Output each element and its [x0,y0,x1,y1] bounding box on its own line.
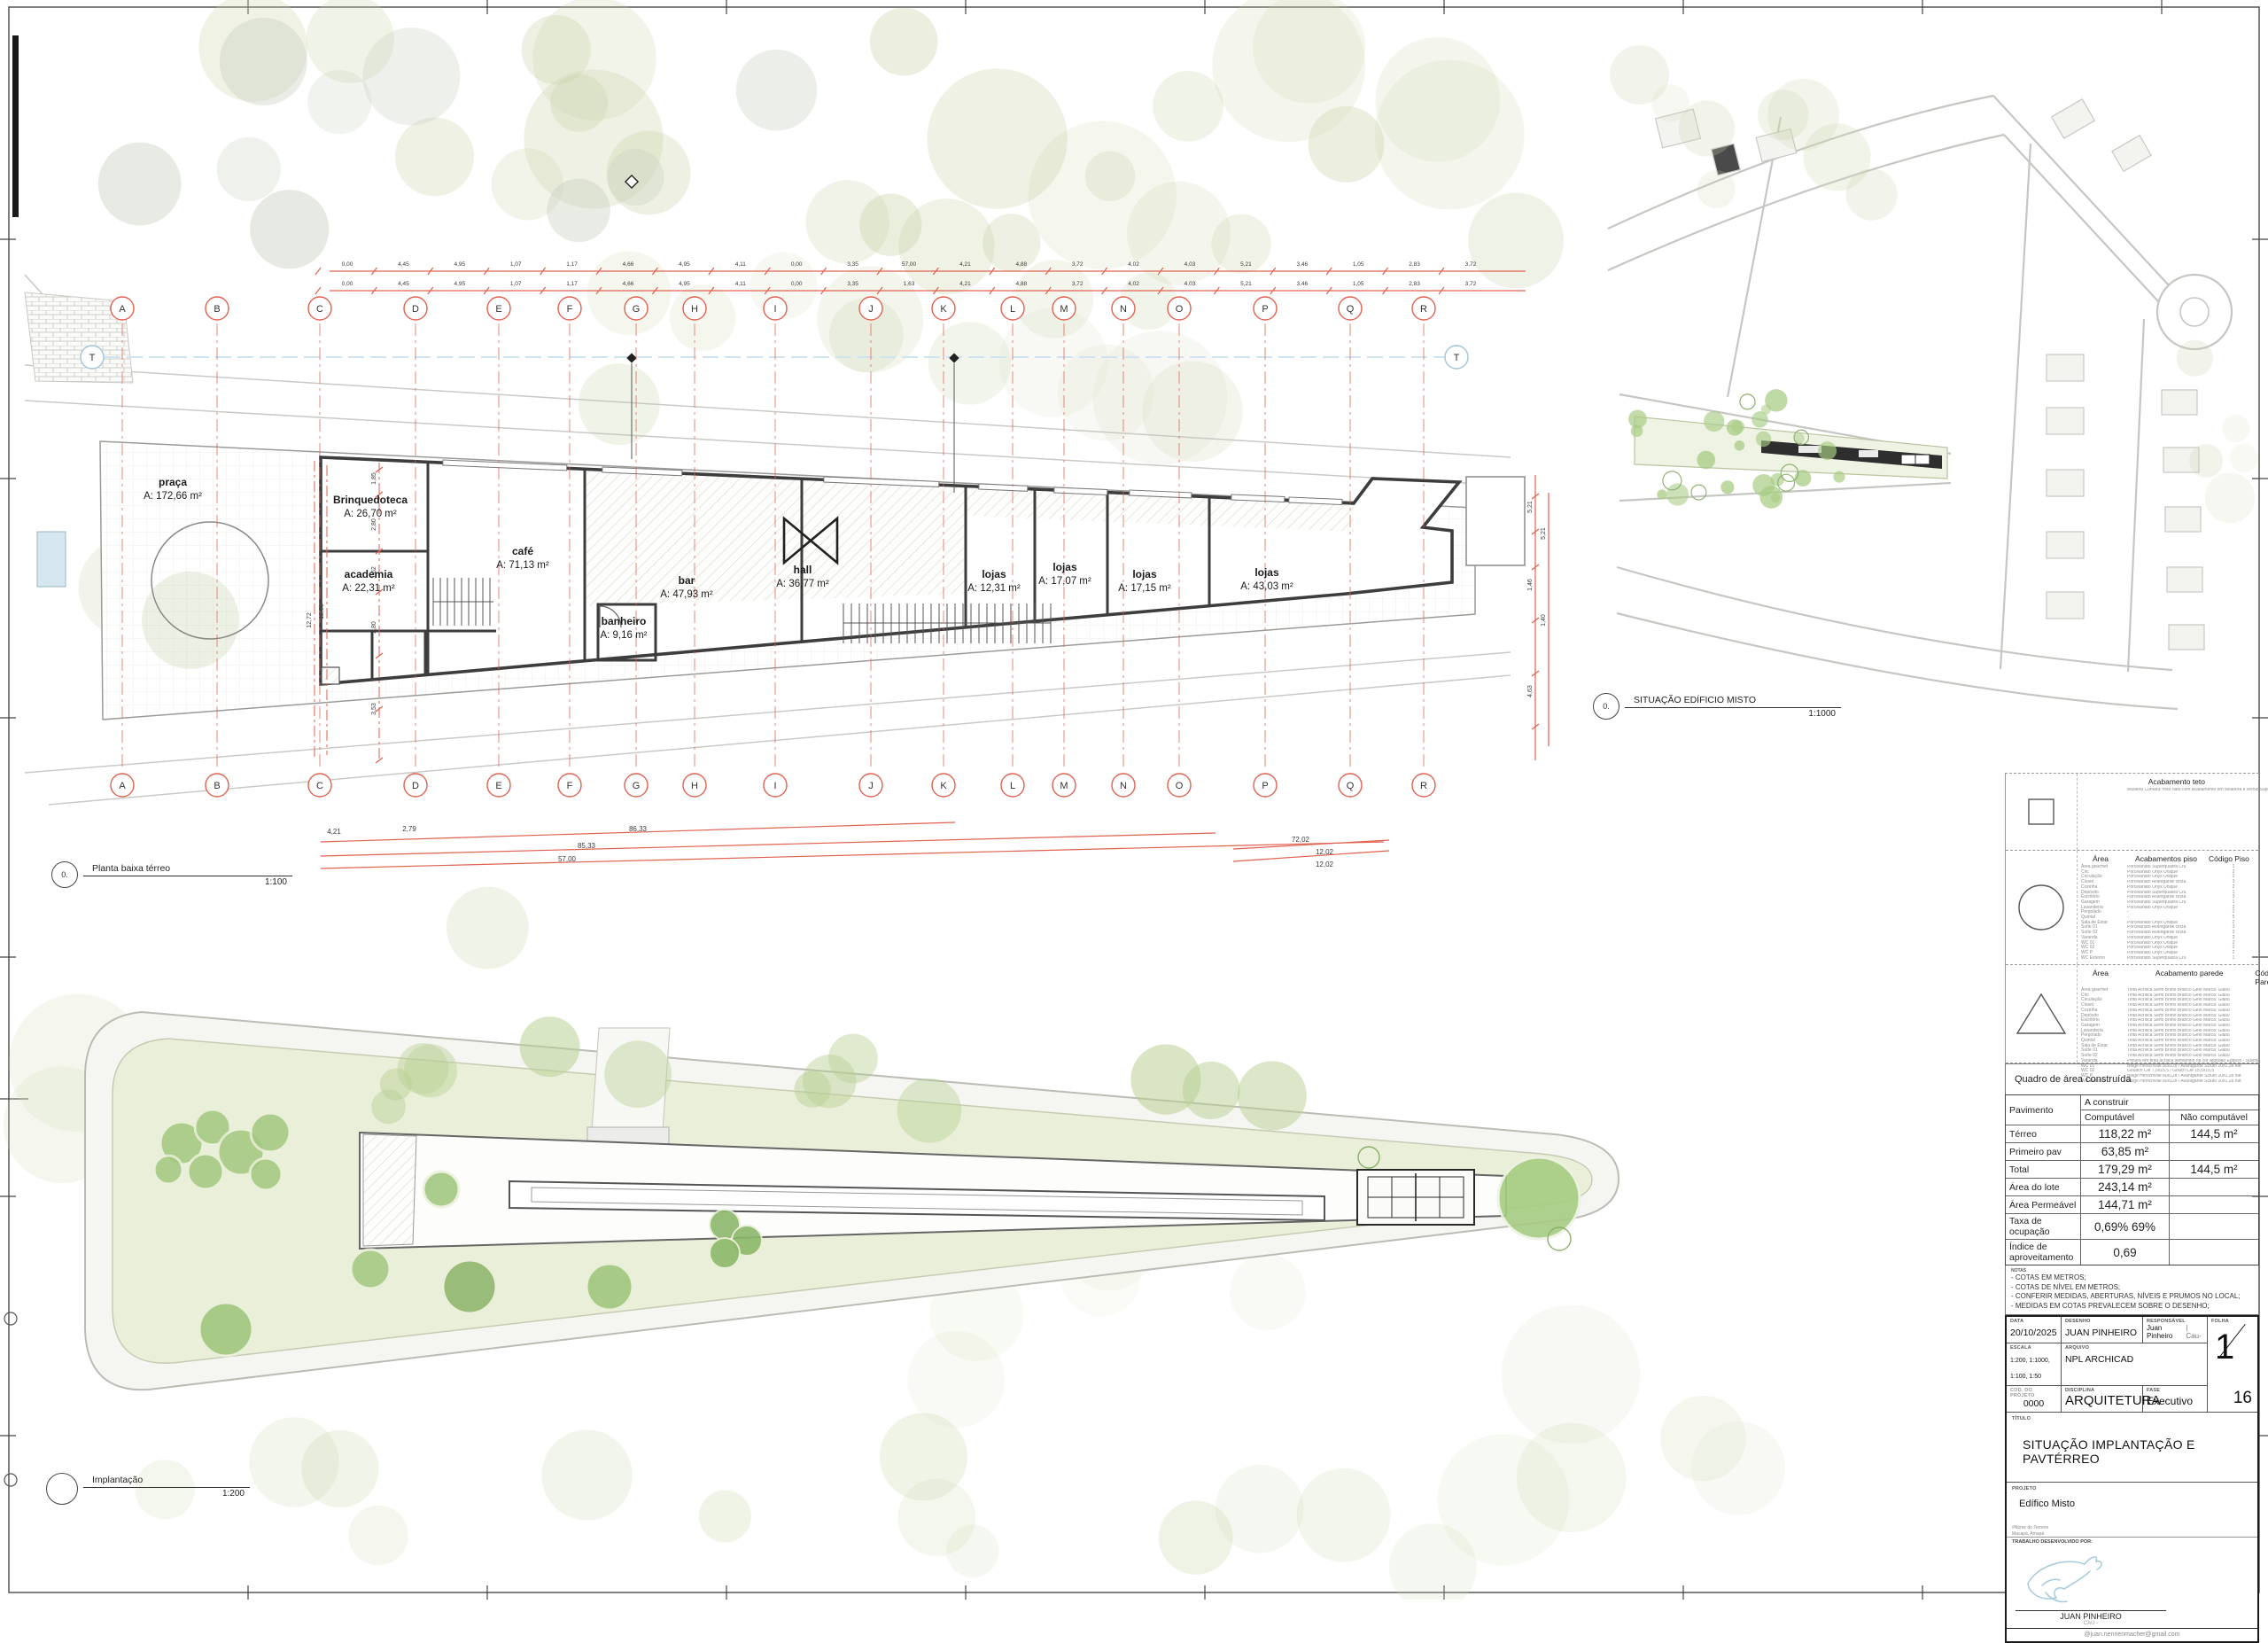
row-label: Térreo [2006,1125,2080,1142]
dimension-value: 2,79 [402,825,416,833]
author-cau: CAU - [2016,1621,2166,1626]
view-bubble: 0. [51,861,78,888]
dimension-value: 4,95 [679,281,690,287]
notes-box: NOTAS - COTAS EM METROS;- COTAS DE NÍVEL… [2005,1265,2259,1315]
legend-header: Área [2078,854,2124,863]
row-computavel: 0,69 [2080,1239,2169,1265]
grid-letter: L [1010,781,1015,791]
floor-symbol-circle [2006,851,2077,964]
dimension-value: 2,80 [371,518,377,531]
room-area: A: 36,77 m² [776,579,829,589]
registration-mark [4,1312,17,1325]
note-item: - CONFERIR MEDIDAS, ABERTURAS, NÍVEIS E … [2011,1292,2253,1302]
dimension-value: 3,46 [1296,281,1308,287]
floor-hatch-bar-hall [585,469,966,606]
room-area: A: 172,66 m² [144,491,202,502]
room-name: lojas [1132,568,1157,580]
legend-header: Código Parede [2255,969,2268,986]
row-computavel: 118,22 m² [2080,1125,2169,1142]
legend-ceiling: Acabamento teto Código Teto Madeira Cuma… [2006,774,2258,851]
legend-row: Madeira Cumaru: friso nato com acabament… [2078,788,2268,793]
right-column: Acabamento teto Código Teto Madeira Cuma… [2005,773,2259,1643]
dimension-value: 5,21 [1527,501,1534,513]
dimension-value: 4,45 [398,281,409,287]
grid-letter: K [940,304,947,315]
dimension-value: 4,95 [679,261,690,268]
sheet-number: 1 [2215,1328,2234,1367]
view-bubble [46,1473,78,1505]
dimension-value: 1,07 [510,281,522,287]
legend-row: WC ExternoPorcelanato Superquadra Cru1 [2078,956,2255,962]
legend-header: Código Piso [2209,854,2255,863]
field-fase: FASE Executivo [2143,1386,2208,1413]
grid-letter: R [1420,781,1427,791]
dimension-value: 3,35 [847,261,858,268]
note-item: - COTAS EM METROS; [2011,1273,2253,1283]
grid-letter: A [119,781,126,791]
room-name: academia [345,568,393,580]
dimension-value: 2,83 [1409,281,1420,287]
room-area: A: 26,70 m² [344,509,397,519]
legend-header: Acabamento parede [2124,969,2255,986]
dimension-value: 4,11 [735,281,747,287]
legend-header: Área [2078,969,2124,986]
dimension-value: 4,88 [1015,281,1027,287]
row-nao-computavel [2169,1178,2258,1195]
grid-letter: A [119,304,126,315]
dimension-value: 4,95 [454,281,465,287]
dimension-value: 4,03 [1184,281,1196,287]
dimension-value: 4,21 [327,828,341,836]
roundabout [2157,275,2232,349]
table-header: A construir [2080,1095,2169,1110]
table-header: Pavimento [2006,1095,2080,1125]
dimension-value: 4,03 [1184,261,1196,268]
view-label-implantacao: Implantação 1:200 [46,1473,250,1505]
sheet-total: 16 [2233,1389,2252,1408]
table-header: Computável [2080,1110,2169,1125]
table-header: Não computável [2169,1110,2258,1125]
dimension-value: 1,40 [1541,614,1547,627]
situation-plan-view [1608,45,2258,709]
dimension-value: 4,95 [454,261,465,268]
dimension-value: 1,05 [1353,281,1364,287]
room-area: A: 12,31 m² [967,583,1021,594]
grid-letter: J [868,781,874,791]
dimension-value: 86,33 [629,825,648,833]
room-area: A: 17,15 m² [1118,583,1171,594]
dimension-value: 1,85 [371,472,377,485]
row-label: Índice de aproveitamento [2006,1239,2080,1265]
view-title: Implantação [83,1475,250,1488]
field-desenho: DESENHO JUAN PINHEIRO [2062,1317,2143,1343]
room-name: lojas [1254,566,1279,579]
field-cod-projeto: COD. DO PROJETO 0000 [2007,1386,2062,1413]
water-feature [37,532,66,587]
ceiling-symbol-square [2006,774,2077,850]
dimension-value: 85,33 [578,842,596,850]
cad-drawing-canvas: T T AABBCCDDEEFFGGHHIIJJKKLLMMNNOOPPQQRR… [0,0,2268,1600]
map-buildings [1656,99,2204,650]
field-data: DATA 20/10/2025 [2007,1317,2062,1343]
dimension-value: 3,72 [1072,261,1084,268]
note-item: - COTAS DE NÍVEL EM METROS; [2011,1283,2253,1293]
view-scale: 1:200 [83,1488,250,1499]
roof-hatch [363,1134,416,1246]
room-area: A: 43,03 m² [1240,581,1293,592]
grid-letter: L [1010,304,1015,315]
dimension-value: 1,17 [566,261,578,268]
dimension-value: 2,80 [371,621,377,634]
dimension-value: 0,00 [342,281,353,287]
view-bubble: 0. [1593,693,1619,720]
dimension-value: 4,21 [959,281,971,287]
room-area: A: 9,16 m² [600,630,647,641]
section-letter: T [1454,353,1460,363]
room-name: lojas [982,568,1006,580]
legend-header: Acabamentos piso [2124,854,2209,863]
floor-plan-view: T T AABBCCDDEEFFGGHHIIJJKKLLMMNNOOPPQQRR… [25,0,1564,969]
praca-lawn [142,572,239,669]
dimension-value: 0,00 [791,261,803,268]
registration-mark [4,1474,17,1486]
field-projeto: PROJETO Edífico Misto [2007,1483,2257,1525]
signature-area: JUAN PINHEIRO CAU - [2007,1546,2257,1628]
grid-letter: F [567,781,573,791]
grid-letter: Q [1347,781,1355,791]
grid-letter: K [940,781,947,791]
dimension-value: 3,46 [1296,261,1308,268]
room-name: banheiro [602,615,647,627]
grid-letter: I [773,781,776,791]
row-computavel: 0,69% 69% [2080,1213,2169,1239]
room-name: hall [794,564,812,576]
row-nao-computavel: 144,5 m² [2169,1160,2258,1178]
room-area: A: 17,07 m² [1038,576,1091,587]
tennis-court [1357,1170,1474,1225]
view-label-planta: 0. Planta baixa térreo 1:100 [51,861,292,888]
row-label: Área do lote [2006,1178,2080,1195]
row-nao-computavel: 144,5 m² [2169,1125,2258,1142]
contact-email: @juan.nennenmacher@gmail.com [2007,1628,2257,1641]
dimension-value: 1,07 [510,261,522,268]
dimension-value: 3,72 [1465,281,1477,287]
row-nao-computavel [2169,1142,2258,1160]
author-name: JUAN PINHEIRO [2016,1611,2166,1621]
grid-letter: R [1420,304,1427,315]
view-title: SITUAÇÃO EDÍFICIO MISTO [1625,695,1841,708]
grid-letter: Q [1347,304,1355,315]
implantation-plan-view [4,993,1785,1600]
grid-letter: C [316,304,323,315]
view-scale: 1:1000 [1625,708,1841,719]
field-titulo: TÍTULO SITUAÇÃO IMPLANTAÇÃO E PAVTÉRREO [2007,1413,2257,1483]
grid-letter: E [495,304,501,315]
grid-letter: E [495,781,501,791]
dimension-value: 1,46 [1527,579,1534,591]
room-area: A: 22,31 m² [342,583,395,594]
row-label: Taxa de ocupação [2006,1213,2080,1239]
field-arquivo: ARQUIVO NPL ARCHICAD [2062,1343,2208,1386]
hatched-cell [322,667,339,684]
dimension-value: 57,00 [902,261,917,268]
row-nao-computavel [2169,1195,2258,1213]
room-area: A: 71,13 m² [496,560,549,571]
view-title: Planta baixa térreo [83,863,292,876]
row-computavel: 63,85 m² [2080,1142,2169,1160]
dimension-value: 4,63 [1527,685,1534,697]
view-scale: 1:100 [83,876,292,887]
dimension-value: 4,02 [1128,281,1139,287]
grid-letter: B [214,781,220,791]
dimension-value: 2,83 [1409,261,1420,268]
dimension-value: 5,21 [1541,527,1547,540]
room-area: A: 47,93 m² [660,589,713,600]
dimension-value: 4,66 [623,281,634,287]
grid-letter: H [691,304,698,315]
dimension-value: 0,00 [791,281,803,287]
grid-letter: O [1176,304,1184,315]
dimension-value: 12,72 [307,612,313,628]
dimension-value: 57,00 [558,855,577,863]
legend-wall: Área Acabamento parede Código Parede Áre… [2006,965,2258,1063]
view-label-situacao: 0. SITUAÇÃO EDÍFICIO MISTO 1:1000 [1593,693,1841,720]
area-table: Pavimento A construir Computável Não com… [2005,1094,2259,1265]
project-name: Edífico Misto [2019,1499,2252,1509]
grid-letter: J [868,304,874,315]
grid-letter: D [412,781,419,791]
dimension-value: 12,02 [1316,848,1334,856]
dimension-value: 5,21 [1240,261,1252,268]
grid-letter: M [1060,781,1068,791]
table-header [2169,1095,2258,1110]
row-label: Total [2006,1160,2080,1178]
dimension-value: 72,02 [1292,836,1310,844]
dimension-value: 12,02 [1316,860,1334,868]
dimension-value: 4,88 [1015,261,1027,268]
room-name: praça [159,476,187,488]
grid-letter: P [1262,304,1268,315]
grid-letter: P [1262,781,1268,791]
field-terreno: #Nome do Terreno Macapá, Amapá [2007,1525,2257,1537]
grid-letter: B [214,304,220,315]
wall-symbol-triangle [2006,965,2077,1063]
row-computavel: 144,71 m² [2080,1195,2169,1213]
dimension-value: 1,17 [566,281,578,287]
grid-letter: M [1060,304,1068,315]
grid-letter: I [773,304,776,315]
edge-scale-bar [12,35,19,217]
detached-structure [1466,477,1525,565]
dimension-value: 3,35 [847,281,858,287]
dimension-value: 3,72 [1072,281,1084,287]
room-name: lojas [1052,561,1077,573]
dimension-value: 1,63 [904,281,915,287]
sheet-title: SITUAÇÃO IMPLANTAÇÃO E PAVTÉRREO [2023,1437,2252,1466]
dimension-value: 4,11 [735,261,747,268]
grid-letter: G [633,304,641,315]
grid-letter: O [1176,781,1184,791]
field-escala: ESCALA 1:200, 1:1000, 1:100, 1:50 [2007,1343,2062,1386]
dimension-value: 4,45 [398,261,409,268]
field-folha: FOLHA 1 16 [2208,1317,2257,1413]
legend-floor: Área Acabamentos piso Código Piso Área g… [2006,851,2258,965]
grid-letter: N [1120,781,1127,791]
field-trabalho: TRABALHO DESENVOLVIDO POR: [2007,1537,2257,1546]
dimension-value: 4,02 [1128,261,1139,268]
dimension-value: 0,00 [342,261,353,268]
title-block: DATA 20/10/2025 DESENHO JUAN PINHEIRO RE… [2005,1315,2259,1643]
dimension-value: 5,21 [1240,281,1252,287]
row-computavel: 243,14 m² [2080,1178,2169,1195]
dimension-value: 3,72 [1465,261,1477,268]
row-label: Área Permeável [2006,1195,2080,1213]
field-disciplina: DISCIPLINA ARQUITETURA [2062,1386,2143,1413]
grid-letter: C [316,781,323,791]
row-label: Primeiro pav [2006,1142,2080,1160]
dimension-value: 4,21 [959,261,971,268]
grid-letter: D [412,304,419,315]
section-letter: T [89,353,96,363]
grid-letter: N [1120,304,1127,315]
room-name: bar [679,574,695,587]
grid-letter: H [691,781,698,791]
dimension-value: 4,66 [623,261,634,268]
dimension-value: 12,60 [319,603,325,619]
legend-header: Acabamento teto [2078,777,2268,786]
dimension-value: 1,05 [1353,261,1364,268]
dimension-value: 3,53 [371,703,377,715]
grid-letter: F [567,304,573,315]
row-nao-computavel [2169,1213,2258,1239]
room-name: café [512,545,533,557]
row-nao-computavel [2169,1239,2258,1265]
row-computavel: 179,29 m² [2080,1160,2169,1178]
room-name: Brinquedoteca [333,494,408,506]
grid-letter: G [633,781,641,791]
field-responsavel: RESPONSÁVEL Juan Pinheiro | Cau- [2143,1317,2208,1343]
finishes-legend: Acabamento teto Código Teto Madeira Cuma… [2005,773,2259,1063]
note-item: - MEDIDAS EM COTAS PREVALECEM SOBRE O DE… [2011,1302,2253,1312]
